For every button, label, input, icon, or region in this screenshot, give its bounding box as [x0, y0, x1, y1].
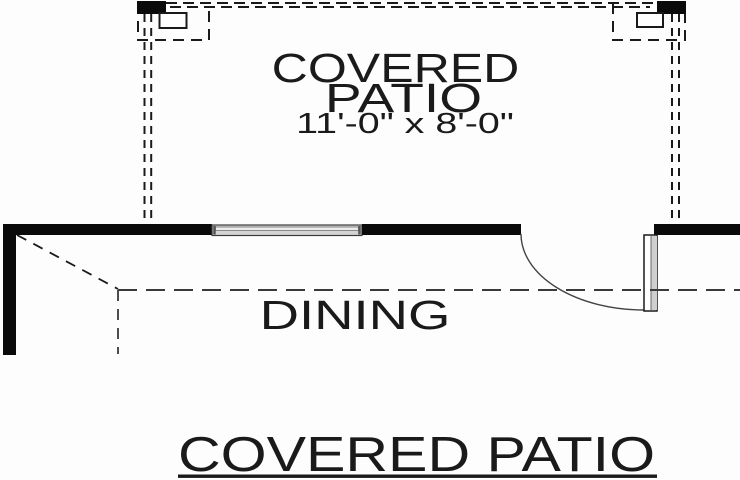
svg-text:11'-0" x 8'-0": 11'-0" x 8'-0" — [296, 108, 514, 140]
svg-text:COVERED PATIO: COVERED PATIO — [178, 427, 655, 480]
svg-text:DINING: DINING — [260, 292, 451, 338]
